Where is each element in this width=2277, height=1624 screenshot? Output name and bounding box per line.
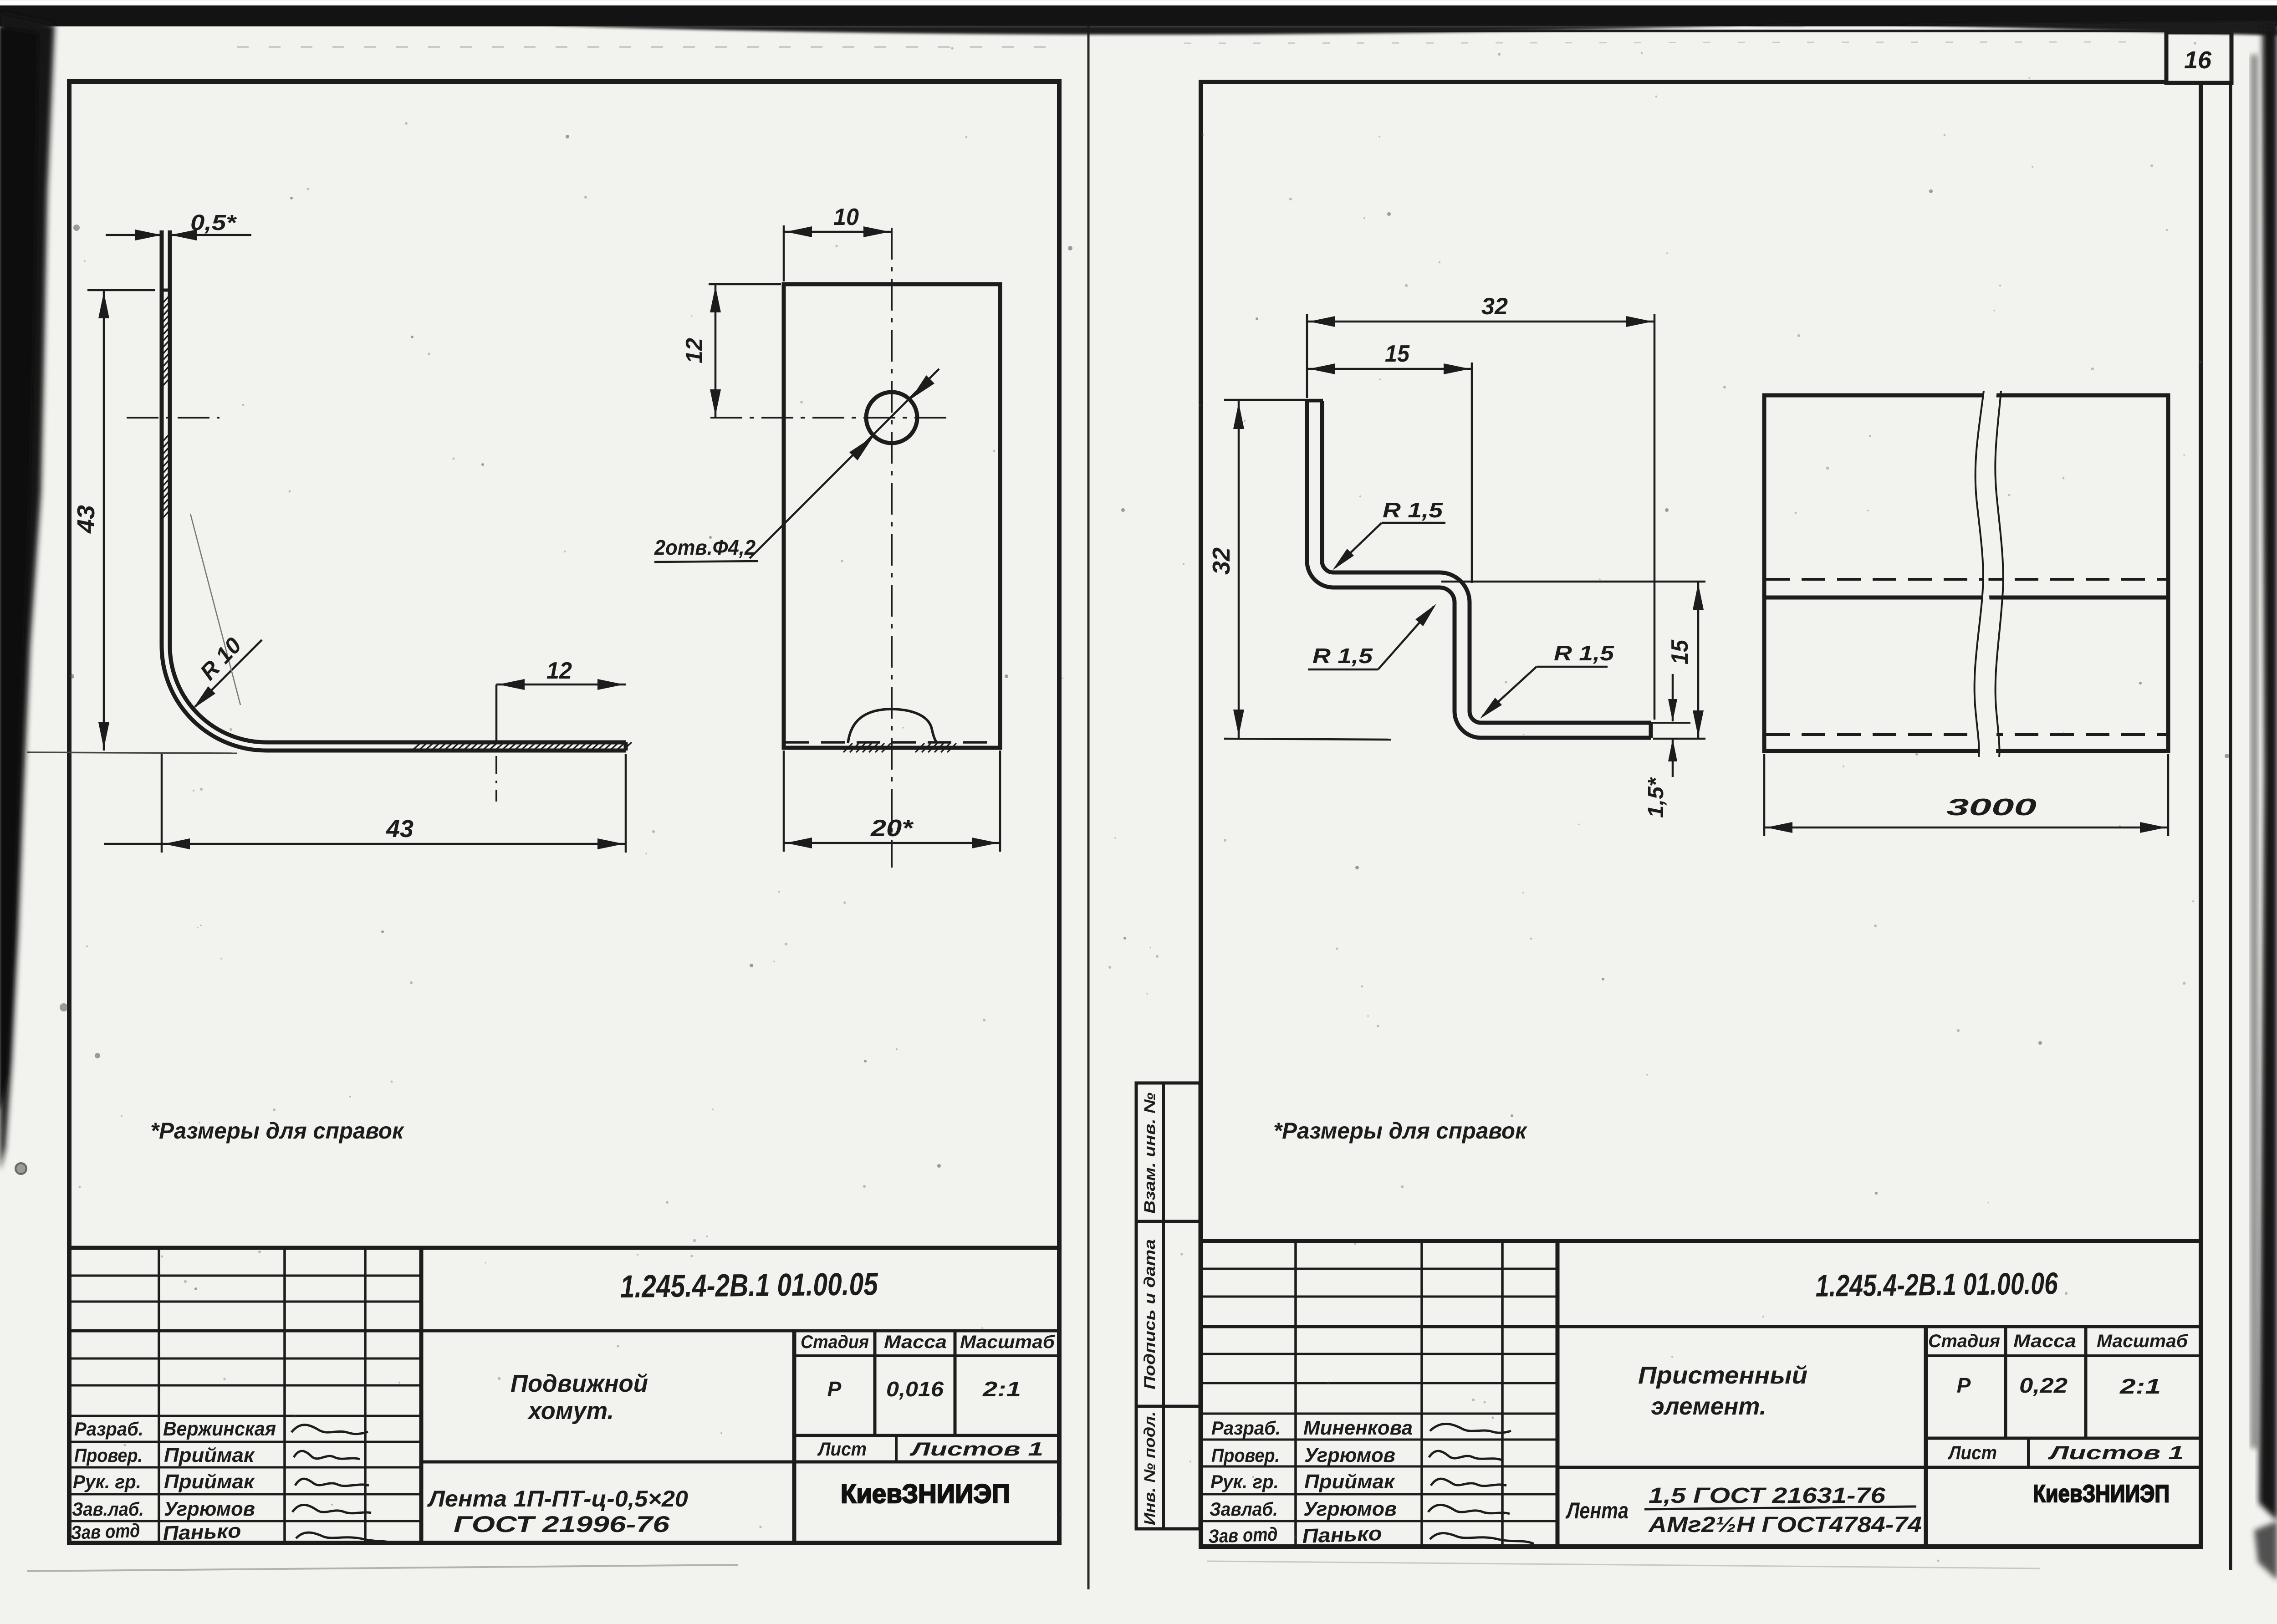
svg-text:R 1,5: R 1,5 [1554,641,1615,665]
svg-text:0,016: 0,016 [886,1377,944,1401]
svg-text:Масса: Масса [884,1332,947,1352]
svg-text:Разраб.: Разраб. [1211,1417,1281,1439]
svg-text:1,5 ГОСТ 21631-76: 1,5 ГОСТ 21631-76 [1649,1484,1885,1508]
svg-text:Зав отд: Зав отд [71,1520,141,1543]
svg-text:32: 32 [1208,547,1235,575]
svg-text:1.245.4-2В.1 01.00.06: 1.245.4-2В.1 01.00.06 [1815,1266,2058,1303]
svg-text:Приймак: Приймак [164,1444,255,1466]
svg-text:10: 10 [833,204,859,230]
svg-text:Лист: Лист [1947,1442,1997,1463]
svg-text:Зав отд: Зав отд [1208,1523,1278,1547]
svg-text:КиевЗНИИЭП: КиевЗНИИЭП [2033,1480,2170,1507]
svg-text:Взам. инв. №: Взам. инв. № [1141,1093,1159,1214]
svg-text:12: 12 [546,658,572,684]
svg-text:32: 32 [1481,293,1508,320]
svg-text:Подпись и дата: Подпись и дата [1141,1239,1159,1389]
svg-text:1,5*: 1,5* [1644,777,1668,818]
svg-text:Зав.лаб.: Зав.лаб. [72,1498,144,1520]
svg-text:Р: Р [827,1377,842,1401]
svg-text:элемент.: элемент. [1651,1393,1766,1420]
svg-text:Стадия: Стадия [1928,1331,2000,1351]
svg-text:*Размеры для справок: *Размеры для справок [1273,1118,1528,1144]
svg-text:Лента 1П-ПТ-ц-0,5×20: Лента 1П-ПТ-ц-0,5×20 [427,1486,688,1512]
svg-text:*Размеры для справок: *Размеры для справок [150,1118,405,1144]
svg-text:R 1,5: R 1,5 [1383,498,1444,522]
svg-text:Угрюмов: Угрюмов [1303,1498,1397,1520]
svg-text:Инв. № подл.: Инв. № подл. [1141,1411,1159,1525]
svg-text:Масса: Масса [2013,1331,2076,1351]
svg-text:КиевЗНИИЭП: КиевЗНИИЭП [841,1479,1010,1509]
svg-text:ГОСТ 21996-76: ГОСТ 21996-76 [454,1512,670,1537]
svg-text:Провер.: Провер. [74,1445,143,1466]
svg-text:2:1: 2:1 [982,1377,1021,1401]
svg-text:Подвижной: Подвижной [511,1370,648,1397]
svg-text:15: 15 [1385,341,1410,367]
svg-text:Панько: Панько [163,1520,242,1545]
svg-text:Рук. гр.: Рук. гр. [1210,1471,1279,1492]
svg-text:Разраб.: Разраб. [74,1418,143,1440]
svg-text:Р: Р [1957,1374,1971,1397]
svg-text:АМг2½Н ГОСТ4784-74: АМг2½Н ГОСТ4784-74 [1648,1513,1922,1537]
svg-text:Листов 1: Листов 1 [2047,1442,2184,1463]
svg-text:Лист: Лист [817,1438,867,1460]
svg-text:Пристенный: Пристенный [1638,1362,1807,1389]
svg-text:1.245.4-2В.1 01.00.05: 1.245.4-2В.1 01.00.05 [620,1266,878,1304]
svg-text:3000: 3000 [1946,794,2037,821]
svg-text:12: 12 [681,338,708,363]
svg-text:Масштаб: Масштаб [960,1332,1055,1352]
svg-text:Миненкова: Миненкова [1303,1417,1413,1439]
svg-text:15: 15 [1667,639,1693,664]
svg-text:Приймак: Приймак [1304,1471,1396,1493]
svg-text:16: 16 [2184,46,2212,74]
svg-text:20*: 20* [870,815,914,842]
svg-text:43: 43 [72,505,100,534]
svg-text:хомут.: хомут. [527,1397,614,1425]
svg-text:Листов 1: Листов 1 [909,1438,1043,1460]
svg-text:2отв.Ф4,2: 2отв.Ф4,2 [654,536,756,559]
svg-text:Стадия: Стадия [801,1332,869,1352]
svg-text:Приймак: Приймак [164,1471,255,1493]
svg-text:Панько: Панько [1302,1522,1383,1547]
svg-text:Масштаб: Масштаб [2097,1331,2188,1351]
svg-text:Провер.: Провер. [1211,1445,1280,1466]
svg-text:Угрюмов: Угрюмов [1304,1444,1395,1466]
svg-text:Рук. гр.: Рук. гр. [73,1471,141,1492]
svg-text:2:1: 2:1 [2119,1374,2161,1398]
svg-text:Лента: Лента [1566,1498,1629,1523]
svg-text:Завлаб.: Завлаб. [1210,1498,1278,1520]
svg-text:R 1,5: R 1,5 [1312,644,1373,668]
svg-text:Угрюмов: Угрюмов [164,1498,255,1520]
svg-text:0,22: 0,22 [2019,1374,2068,1397]
svg-text:43: 43 [386,815,414,843]
svg-text:0,5*: 0,5* [190,211,237,235]
svg-text:Вержинская: Вержинская [163,1418,276,1440]
